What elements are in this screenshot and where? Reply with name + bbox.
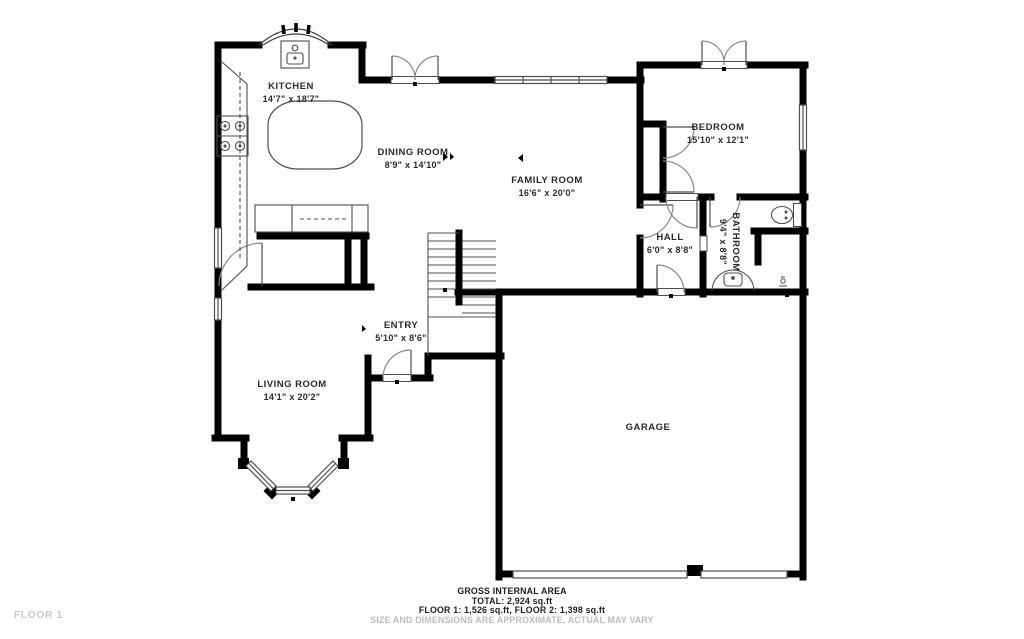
room-name: ENTRY	[384, 320, 418, 331]
room-name: HALL	[656, 232, 683, 243]
entry-front-door	[383, 350, 411, 378]
room-dims: 16'6" x 20'0"	[511, 187, 582, 199]
room-dims: 9'4" x 8'8"	[717, 212, 729, 271]
kitchen-arch-mullions	[283, 23, 309, 34]
toilet	[772, 204, 802, 227]
room-label-garage: GARAGE	[626, 422, 671, 434]
room-label-bathroom: BATHROOM 9'4" x 8'8"	[717, 212, 741, 271]
stove	[217, 116, 248, 156]
room-label-bedroom: BEDROOM 15'10" x 12'1"	[687, 122, 749, 146]
kitchen-island	[268, 101, 362, 169]
hall-garage-door	[657, 265, 684, 292]
room-label-living-room: LIVING ROOM 14'1" x 20'2"	[257, 379, 326, 403]
room-dims: 15'10" x 12'1"	[687, 134, 749, 146]
door-thresholds	[383, 62, 747, 382]
room-dims: 5'10" x 8'6"	[375, 332, 426, 344]
room-label-family-room: FAMILY ROOM 16'6" x 20'0"	[511, 175, 582, 199]
room-name: GARAGE	[626, 422, 671, 433]
floor-plan-page: KITCHEN 14'7" x 18'7" DINING ROOM 8'9" x…	[0, 0, 1024, 639]
bay-window	[246, 461, 338, 494]
room-name: KITCHEN	[268, 81, 314, 92]
shower-drain-icon	[779, 277, 787, 286]
room-dims: 6'0" x 8'8"	[647, 244, 693, 256]
room-name: DINING ROOM	[378, 147, 449, 158]
room-label-kitchen: KITCHEN 14'7" x 18'7"	[263, 81, 320, 105]
floor-label: FLOOR 1	[14, 610, 63, 621]
bedroom-door	[666, 197, 697, 228]
vanity-sink	[712, 270, 754, 291]
footer-area-summary: GROSS INTERNAL AREA TOTAL: 2,924 sq.ft F…	[0, 587, 1024, 625]
room-name: BATHROOM	[730, 212, 741, 271]
disclaimer: SIZE AND DIMENSIONS ARE APPROXIMATE, ACT…	[0, 616, 1024, 626]
room-dims: 14'7" x 18'7"	[263, 93, 320, 105]
floor-plan-drawing	[0, 0, 1024, 639]
room-dims: 8'9" x 14'10"	[378, 159, 449, 171]
room-label-entry: ENTRY 5'10" x 8'6"	[375, 320, 426, 344]
room-name: LIVING ROOM	[257, 379, 326, 390]
room-dims: 14'1" x 20'2"	[257, 391, 326, 403]
kitchen-sink	[281, 41, 309, 68]
room-name: FAMILY ROOM	[511, 175, 582, 186]
room-label-dining-room: DINING ROOM 8'9" x 14'10"	[378, 147, 449, 171]
garage-doors	[513, 571, 787, 578]
room-label-hall: HALL 6'0" x 8'8"	[647, 232, 693, 256]
room-name: BEDROOM	[691, 122, 744, 133]
